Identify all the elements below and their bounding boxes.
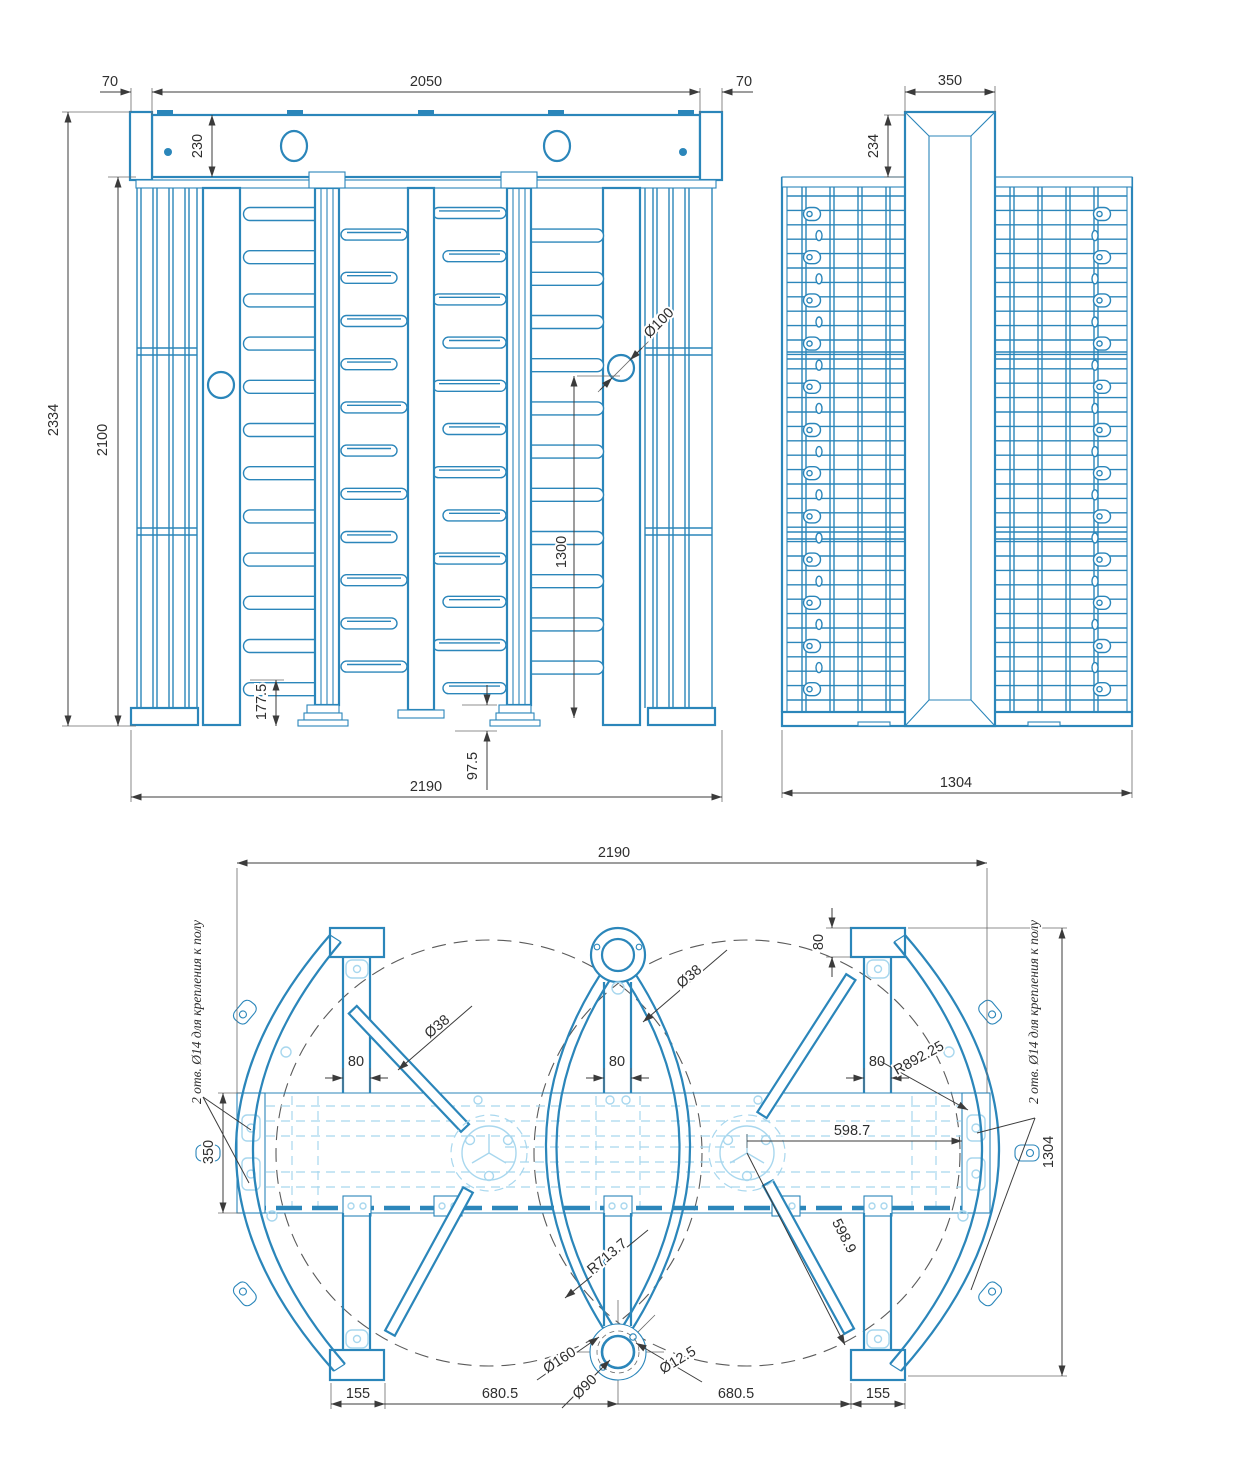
dim-plan-span-left: 680.5	[482, 1386, 518, 1402]
dim-front-left-margin: 70	[102, 74, 118, 90]
dim-plan-foot-right: 155	[866, 1386, 890, 1402]
mount-tab	[976, 1280, 1004, 1309]
dim-plan-guide-radius: R892.25	[891, 1038, 947, 1079]
note-anchor-left: 2 отв. Ø14 для крепления к полу	[189, 920, 204, 1104]
drawing-page: 70 2050 70 230 2334 2100 Ø100 1300	[0, 0, 1238, 1478]
dim-plan-hub-to-flange: 598.9	[828, 1216, 859, 1256]
plan-center-wings	[546, 960, 690, 1345]
dim-plan-post-center: 80	[609, 1054, 625, 1070]
dim-plan-arm-dia-center: Ø38	[674, 962, 705, 992]
dim-plan-overall-depth: 1304	[1041, 1136, 1057, 1168]
dim-side-column-width: 350	[938, 73, 962, 89]
dim-front-base-height: 97.5	[465, 752, 481, 780]
dim-front-arm-clearance: 177.5	[254, 684, 270, 720]
mount-tab	[1015, 1145, 1039, 1161]
side-view: 350 234 1304	[782, 73, 1132, 798]
note-anchor-right: 2 отв. Ø14 для крепления к полу	[1026, 920, 1041, 1104]
dim-plan-foot-left: 155	[346, 1386, 370, 1402]
front-center-post	[398, 188, 444, 718]
mount-tab	[976, 998, 1004, 1027]
mount-tab	[231, 1280, 259, 1309]
dim-front-frame-height: 2100	[95, 424, 111, 456]
plan-rotor-hubs	[451, 1115, 785, 1191]
dim-plan-flange-dia: Ø160	[541, 1344, 579, 1377]
dim-plan-post-left: 80	[348, 1054, 364, 1070]
dim-front-bar-span: 1300	[554, 536, 570, 568]
front-header-beam	[130, 110, 722, 188]
dim-plan-plate-height: 80	[811, 934, 827, 950]
dim-front-header-width: 2050	[410, 74, 442, 90]
dim-side-overall-depth: 1304	[940, 775, 972, 791]
dim-plan-hub-to-plate: 598.7	[834, 1123, 870, 1139]
front-view: 70 2050 70 230 2334 2100 Ø100 1300	[46, 74, 753, 802]
dim-plan-overall-width: 2190	[598, 845, 630, 861]
plan-side-railings	[196, 935, 1039, 1371]
plan-top-beam	[237, 1093, 990, 1216]
dim-front-header-height: 230	[190, 134, 206, 158]
dim-plan-rotor-radius: R713.7	[584, 1236, 630, 1278]
side-center-column	[905, 112, 995, 726]
dim-side-top-offset: 234	[866, 134, 882, 158]
turnstile-technical-drawing: 70 2050 70 230 2334 2100 Ø100 1300	[0, 0, 1238, 1478]
dim-plan-arm-dia-left: Ø38	[422, 1012, 453, 1042]
dim-plan-beam-depth: 350	[201, 1140, 217, 1164]
dim-plan-span-right: 680.5	[718, 1386, 754, 1402]
dim-front-right-margin: 70	[736, 74, 752, 90]
dim-front-hole-dia: Ø100	[641, 305, 677, 341]
plan-view: 2190 80 80 80 80 Ø38 Ø38 R892.25	[189, 845, 1067, 1409]
plan-posts	[330, 928, 905, 1380]
mount-tab	[231, 998, 259, 1027]
dim-plan-pipe-dia: Ø90	[570, 1372, 601, 1403]
dim-front-overall-height: 2334	[46, 404, 62, 436]
dim-front-overall-width: 2190	[410, 779, 442, 795]
